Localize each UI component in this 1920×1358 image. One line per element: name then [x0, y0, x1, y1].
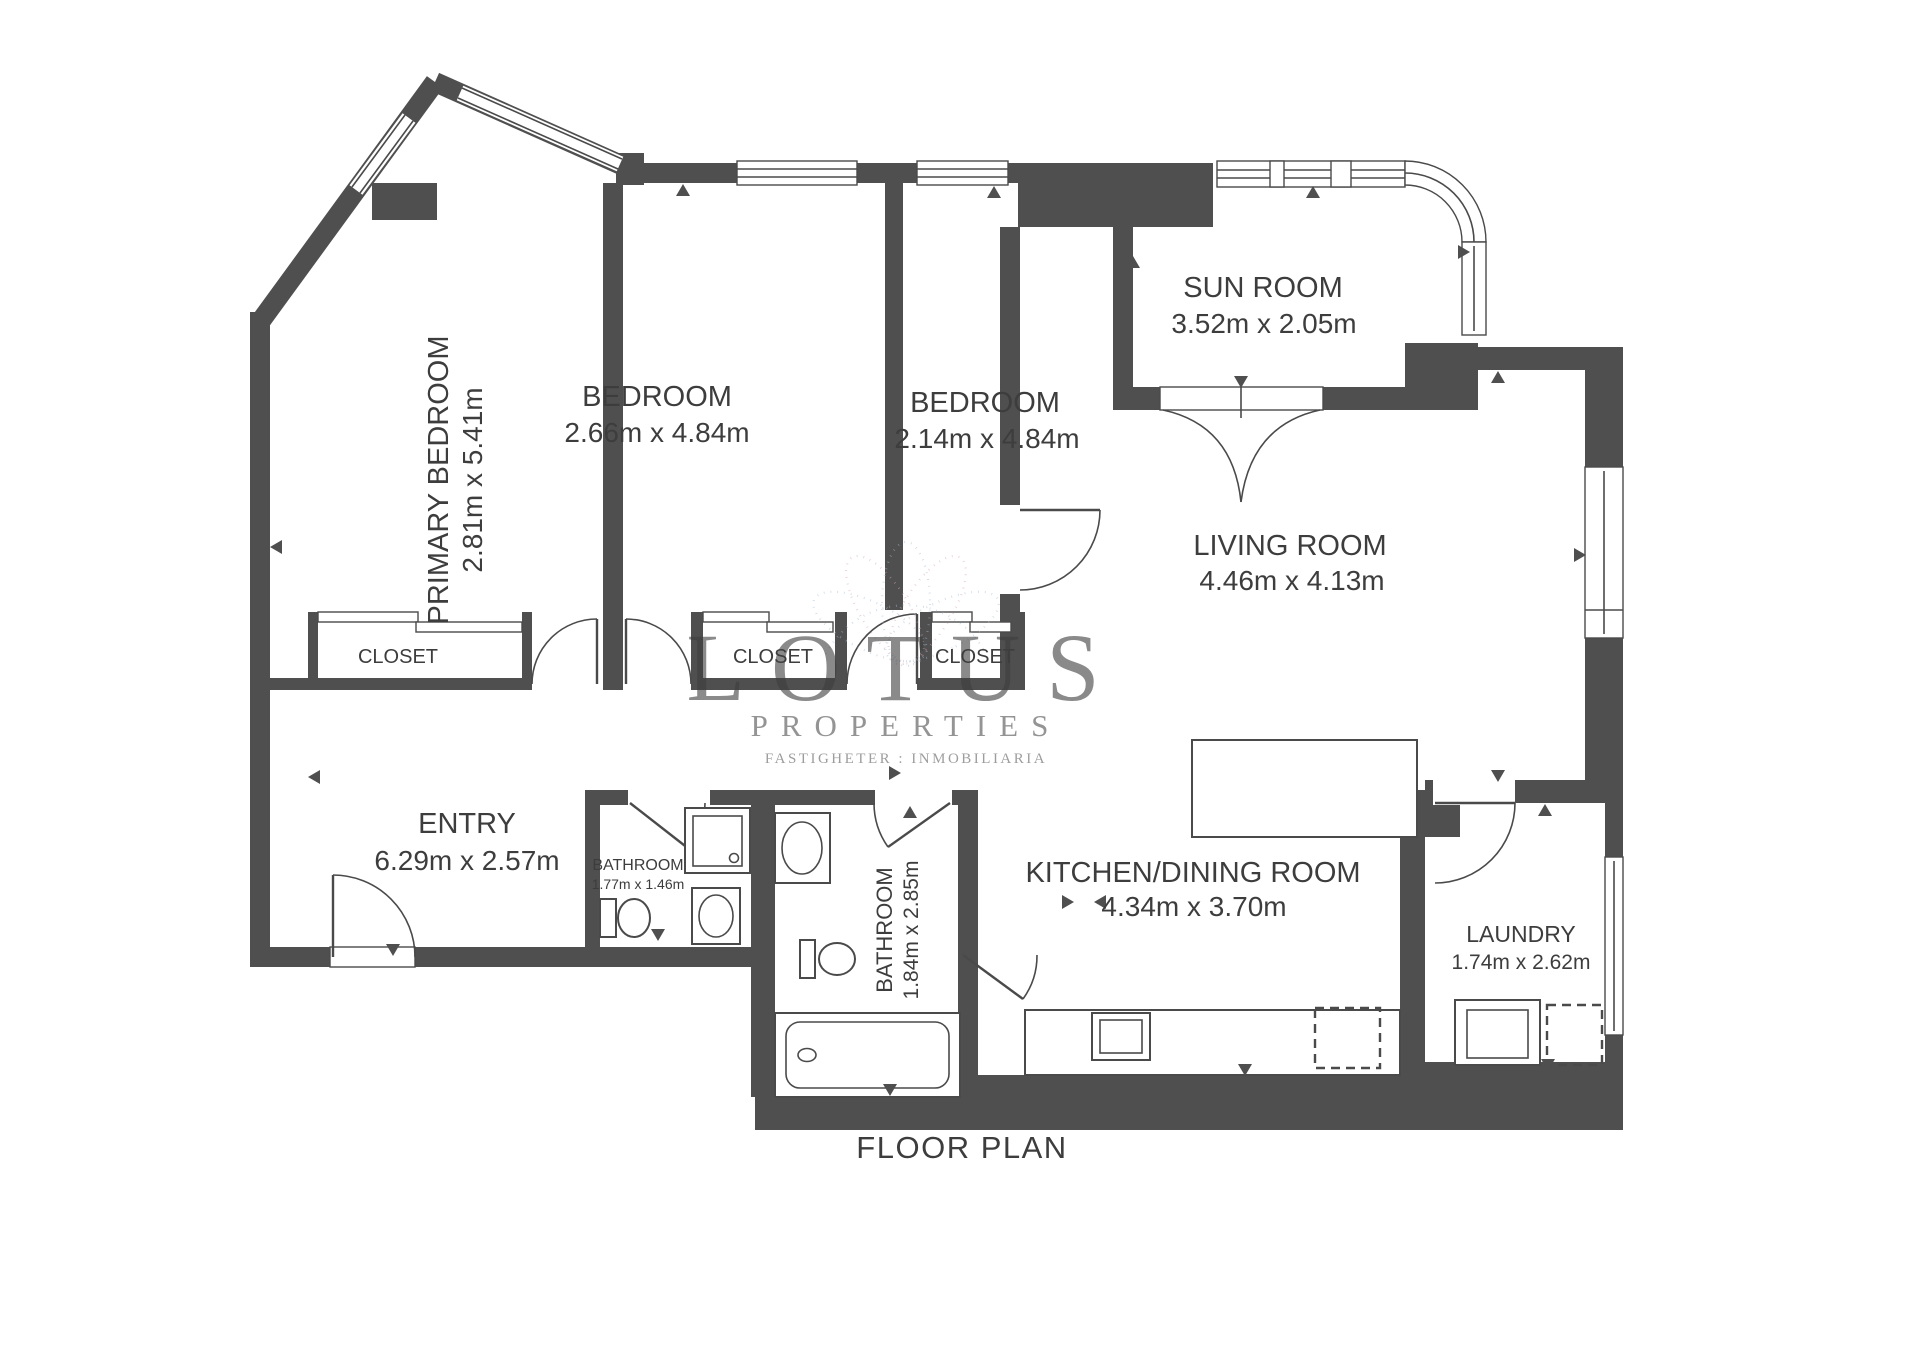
wall-east-upper [1585, 370, 1623, 467]
closet3-label: CLOSET [935, 646, 1015, 668]
marker-up-icon [987, 186, 1001, 198]
room-dims-entry: 6.29m x 2.57m [374, 845, 559, 876]
closet1-side-right [522, 612, 532, 690]
window-bedroom2 [917, 161, 1008, 185]
room-dims-living: 4.46m x 4.13m [1199, 565, 1384, 596]
wall-kitchen-south [978, 1075, 1418, 1130]
room-dims-kitchen: 4.34m x 3.70m [1101, 891, 1286, 922]
marker-down-icon [651, 929, 665, 941]
bathroom2-door-swing [874, 803, 888, 847]
wall-sunroom-west [1113, 227, 1133, 410]
wall-bathroom-divider [751, 805, 775, 1097]
marker-left-icon [270, 540, 282, 554]
bathroom1-door-leaf [630, 803, 689, 849]
closet2-label: CLOSET [733, 646, 813, 668]
room-label-bedroom1: BEDROOM [582, 381, 732, 413]
dryer-dashed-icon [1547, 1005, 1602, 1065]
room-label-sunroom: SUN ROOM [1183, 272, 1343, 304]
marker-up-icon [1538, 804, 1552, 816]
entry-door-swing [333, 875, 415, 957]
window-ne-edge [458, 98, 618, 169]
kitchen-island [1192, 740, 1417, 837]
floor-plan-drawing: LOTUS PROPERTIES FASTIGHETER : INMOBILIA… [230, 50, 1650, 1250]
living-door-gap [998, 506, 1022, 594]
room-dims-bedroom2: 2.14m x 4.84m [894, 423, 1079, 454]
marker-down-icon [1234, 376, 1248, 388]
marker-left-icon [308, 770, 320, 784]
wall-entry-south [250, 947, 775, 967]
room-label-bedroom2: BEDROOM [910, 387, 1060, 419]
marker-up-icon [676, 184, 690, 196]
marker-up-icon [1306, 186, 1320, 198]
bathroom2-door-leaf [888, 803, 950, 847]
floor-plan-page: LOTUS PROPERTIES FASTIGHETER : INMOBILIA… [0, 0, 1920, 1358]
room-label-bathroom2: BATHROOM [872, 867, 897, 992]
wall-west [250, 312, 270, 967]
room-label-kitchen: KITCHEN/DINING ROOM [1025, 857, 1360, 889]
room-label-bathroom1: BATHROOM [592, 857, 683, 874]
room-dims-bathroom1: 1.77m x 1.46m [592, 876, 685, 892]
kitchen-door-swing [1023, 955, 1037, 999]
closet1-label: CLOSET [358, 646, 438, 668]
wall-east-lower [1585, 638, 1623, 803]
primary-bedroom-door-swing [532, 619, 597, 684]
closet1-sliding-door [318, 612, 418, 622]
marker-right-icon [889, 766, 901, 780]
room-dims-primary-bedroom: 2.81m x 5.41m [457, 387, 488, 572]
room-dims-laundry: 1.74m x 2.62m [1452, 951, 1591, 974]
window-mullion [1331, 161, 1351, 187]
wall-ne-step [1462, 347, 1623, 370]
laundry-door-gap [1433, 778, 1515, 805]
window-mullion [1270, 161, 1284, 187]
closet1-side-left [308, 612, 318, 690]
room-label-laundry: LAUNDRY [1466, 921, 1576, 947]
room-label-living: LIVING ROOM [1193, 530, 1386, 562]
toilet-bowl-icon [618, 899, 650, 937]
wall-bedroom1-bedroom2-divider [885, 183, 903, 610]
bathtub-icon [775, 1013, 960, 1097]
toilet-bowl-icon [819, 943, 855, 975]
room-label-entry: ENTRY [418, 808, 516, 840]
entry-door-sill [330, 947, 415, 967]
kitchen-counter [1025, 1010, 1400, 1075]
wall-laundry-east-upper [1605, 803, 1623, 857]
curtain-door-left [1163, 410, 1241, 502]
toilet-tank-icon [800, 940, 815, 978]
room-label-primary-bedroom: PRIMARY BEDROOM [423, 336, 455, 625]
curtain-door-right [1241, 410, 1320, 502]
window-ne-edge [462, 88, 622, 159]
marker-right-icon [1574, 548, 1586, 562]
wall-kitchen-laundry [1400, 803, 1425, 1090]
window-sunroom-top [1217, 161, 1405, 187]
marker-up-icon [903, 806, 917, 818]
living-door-swing [1020, 510, 1100, 590]
room-dims-bedroom1: 2.66m x 4.84m [564, 417, 749, 448]
watermark-tagline: FASTIGHETER : INMOBILIARIA [765, 751, 1047, 767]
room-dims-bathroom2: 1.84m x 2.85m [900, 861, 923, 1000]
chimney-block [372, 183, 437, 220]
marker-right-icon [1062, 895, 1074, 909]
wall-sunroom-south-left [1113, 387, 1160, 410]
window-bedroom1 [737, 161, 857, 185]
shower-icon [685, 808, 750, 873]
toilet-tank-icon [600, 899, 616, 937]
room-dims-sunroom: 3.52m x 2.05m [1171, 308, 1356, 339]
window-curved-corner [1405, 161, 1486, 242]
window-ne [460, 93, 620, 164]
bathroom2-door-gap [875, 788, 952, 807]
wall-north-block [1018, 163, 1213, 227]
window-nw [356, 118, 409, 190]
walls [250, 82, 1623, 1130]
bedroom1-door-swing [626, 619, 691, 684]
bathroom1-door-gap [628, 788, 710, 807]
marker-up-icon [1491, 371, 1505, 383]
wall-bathrooms-north-right [952, 790, 978, 805]
wall-sunroom-south-right [1323, 387, 1410, 410]
plan-title: FLOOR PLAN [856, 1130, 1067, 1165]
wall-bedroom2-living-upper [1000, 227, 1020, 505]
watermark-subtitle: PROPERTIES [751, 708, 1062, 743]
